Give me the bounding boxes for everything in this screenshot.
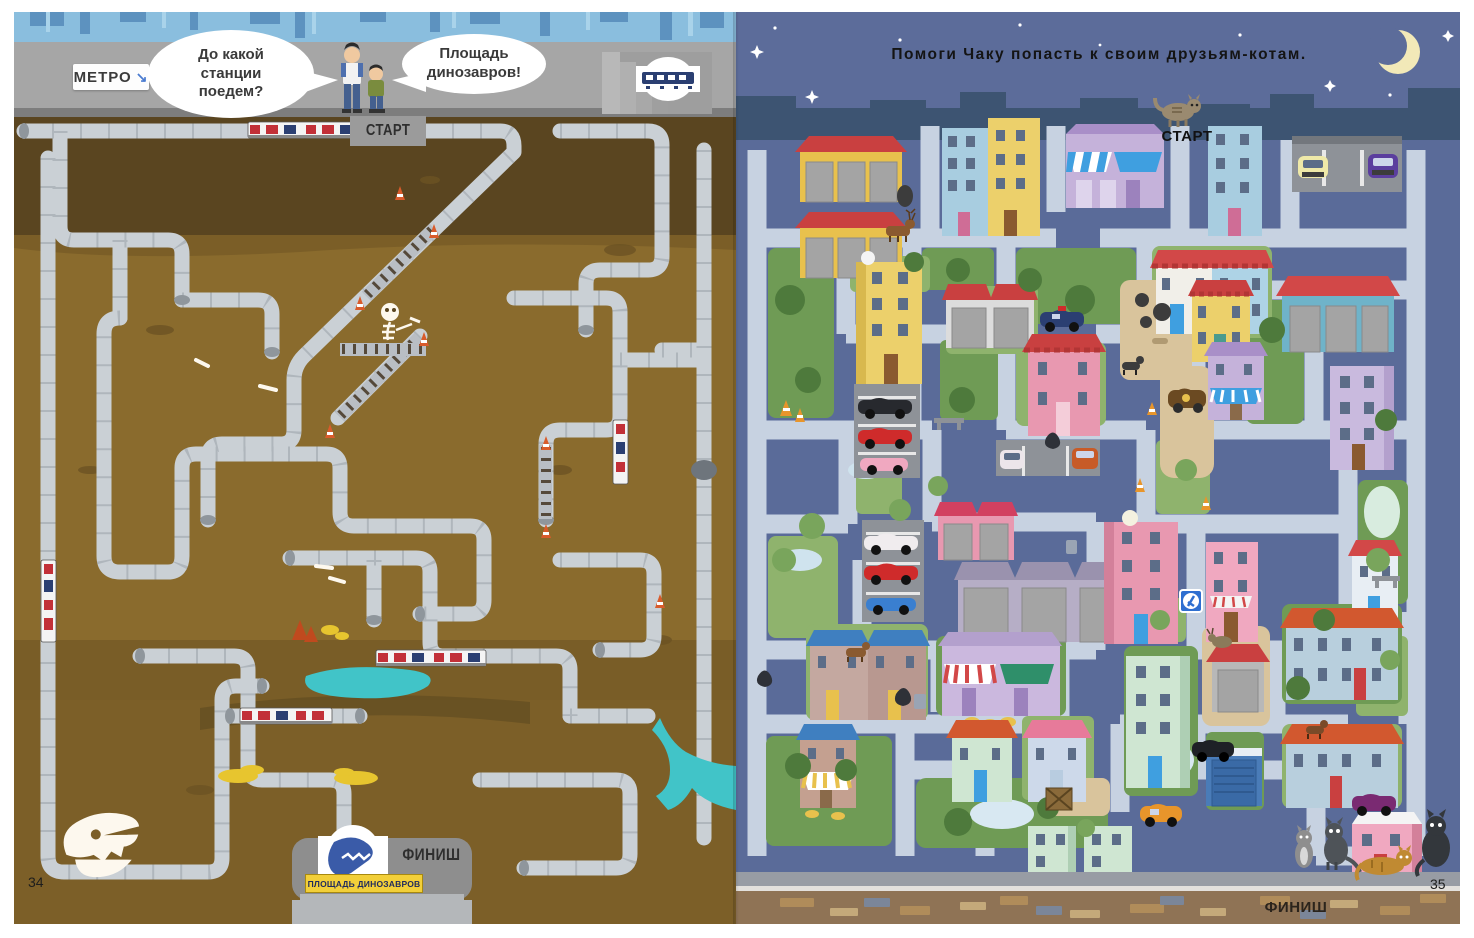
page-gutter <box>733 12 739 924</box>
car-front-yellow <box>1298 156 1328 178</box>
car-front-white <box>1000 450 1024 469</box>
speech-bubble-father-text: До какой станции поедем? <box>171 46 291 102</box>
finish-label-right: Финиш <box>1256 899 1336 916</box>
instruction-text: Помоги Чаку попасть к своим друзьям-кота… <box>737 46 1461 64</box>
house-mint <box>946 720 1018 802</box>
page-number-35: 35 <box>1430 876 1446 892</box>
garage-yellow-1 <box>795 136 913 207</box>
house-pink <box>1022 334 1106 436</box>
parking-top <box>1292 136 1402 192</box>
metro-sign: МЕТРО ↘ <box>73 64 149 90</box>
finish-station-sign: Площадь динозавров <box>305 874 423 893</box>
speech-bubble-father: До какой станции поедем? <box>148 30 314 118</box>
metro-arrow-icon: ↘ <box>136 69 149 86</box>
left-page-metro-maze <box>14 12 736 924</box>
house-bluegray-2 <box>1280 724 1404 808</box>
speech-bubble-child: Площадь динозавров! <box>402 34 546 94</box>
book-spread: МЕТРО ↘ До какой станции поедем? Площадь… <box>0 0 1474 938</box>
page-number-34: 34 <box>28 874 44 890</box>
parking-sign-icon <box>1180 590 1202 612</box>
right-page-city-maze <box>736 12 1460 924</box>
sidewalk <box>736 872 1460 888</box>
metro-sign-label: МЕТРО <box>74 69 132 86</box>
parking-stack-left <box>854 384 920 478</box>
apartment-mint-tall <box>1126 656 1190 788</box>
car-front-purple <box>1368 154 1398 178</box>
moon-reflection <box>1122 510 1138 526</box>
metro-maze-graphic <box>14 12 736 924</box>
shop-lavender-awnings <box>1066 124 1164 208</box>
parking-stack-mid <box>862 520 924 622</box>
finish-label-left: Финиш <box>396 843 466 867</box>
shop-awning-pair <box>938 632 1062 729</box>
garage-teal <box>1276 276 1400 352</box>
start-label-right: Старт <box>1152 128 1222 145</box>
car-front-orange <box>1072 448 1098 469</box>
crate-icon <box>1046 788 1072 810</box>
start-label-left: Старт <box>350 116 426 146</box>
city-maze-graphic <box>736 12 1460 924</box>
speech-bubble-child-text: Площадь динозавров! <box>419 45 529 83</box>
apartment-blue-yellow <box>942 118 1040 236</box>
apartment-pink-2 <box>1206 542 1258 642</box>
house-lavender-awning <box>1204 342 1268 420</box>
